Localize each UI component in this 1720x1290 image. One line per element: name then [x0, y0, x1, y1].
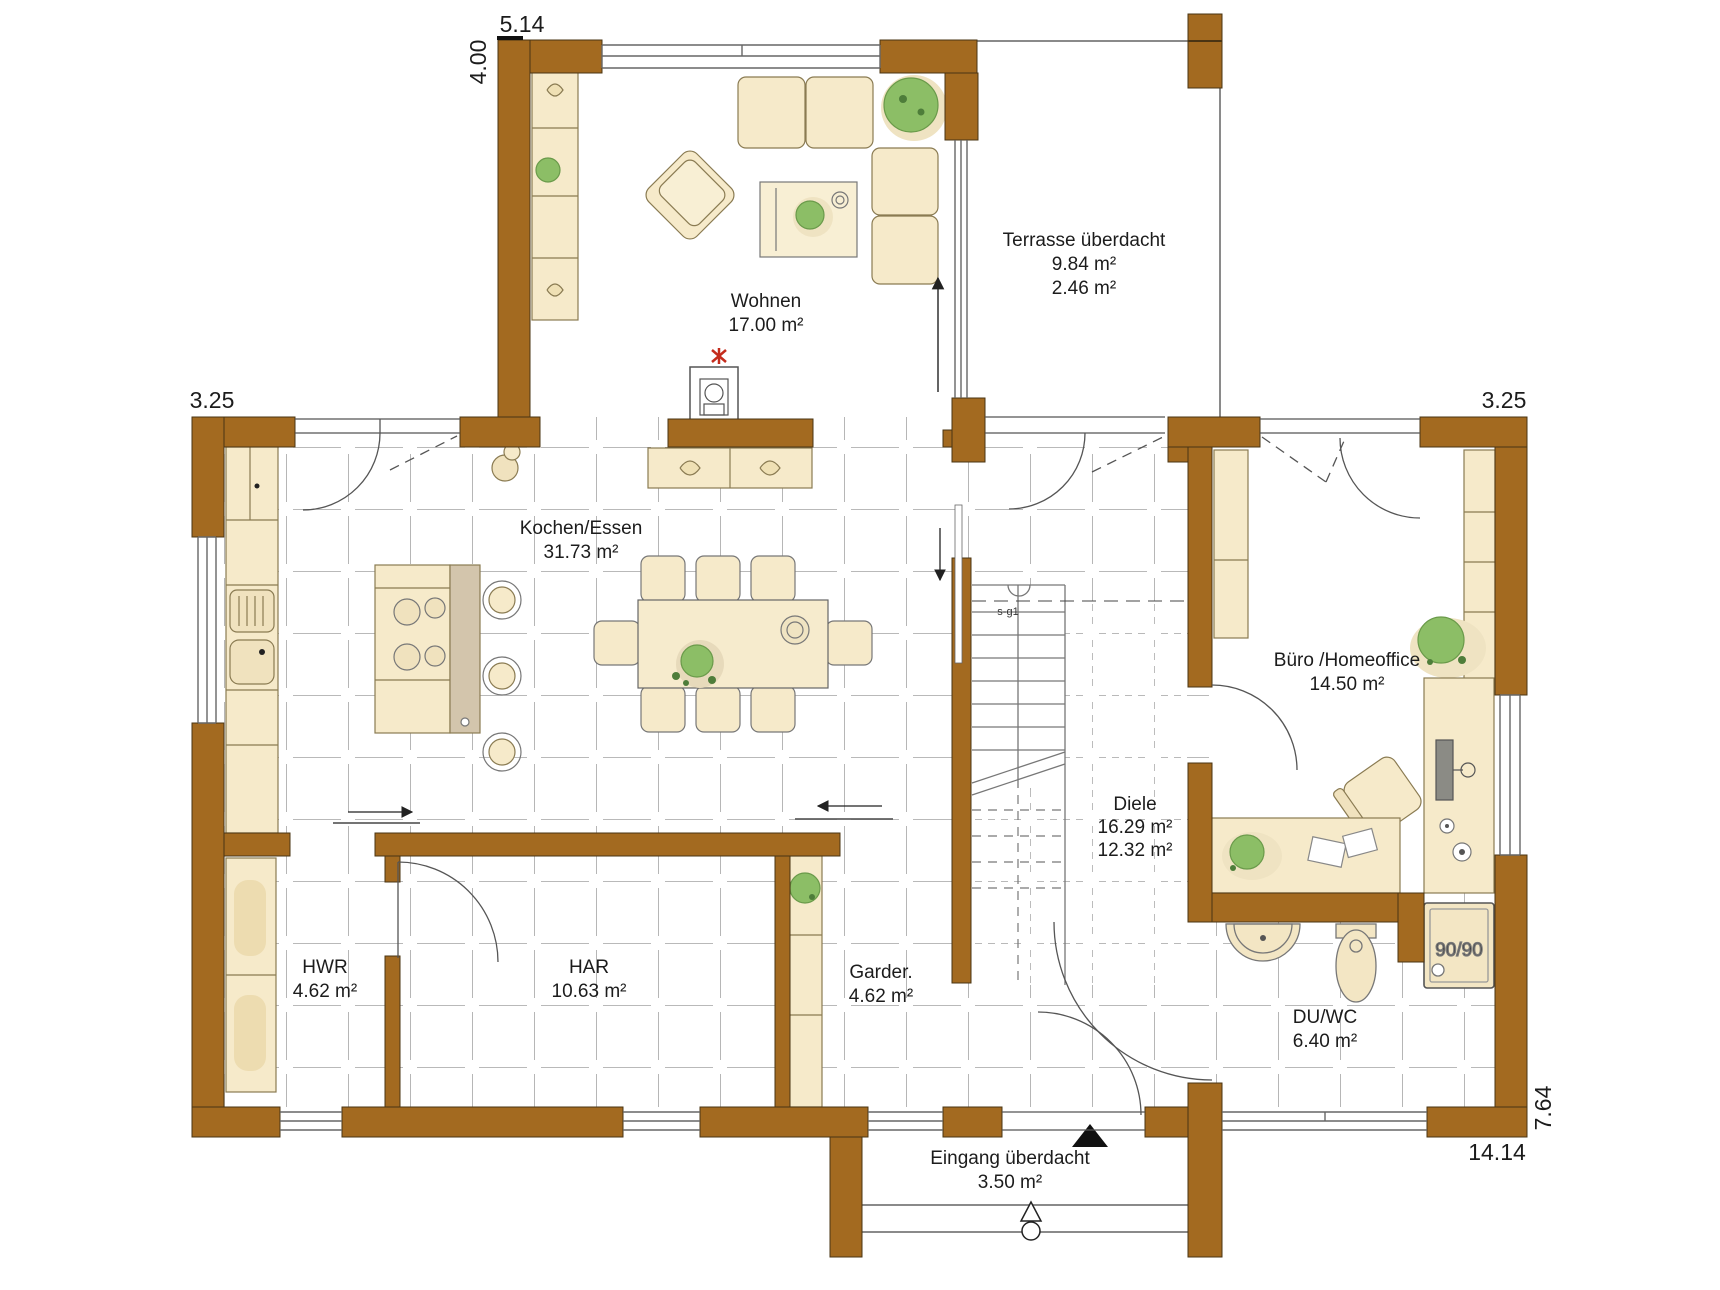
terrace-outline — [977, 41, 1220, 417]
window-livingroom-top — [602, 45, 880, 68]
label-garderobe-area: 4.62 m² — [849, 986, 913, 1007]
armchair — [642, 147, 738, 243]
label-duwc-area: 6.40 m² — [1293, 1031, 1357, 1052]
label-buero-area: 14.50 m² — [1310, 674, 1385, 695]
window-har-bottom — [623, 1112, 700, 1130]
window-duwc-bottom — [1222, 1112, 1427, 1130]
sliding-door-panel — [955, 505, 962, 663]
office-sideboard — [1203, 818, 1400, 893]
label-kochen-area: 31.73 m² — [544, 542, 619, 563]
label-garderobe: Garder. — [849, 962, 912, 983]
label-har-area: 10.63 m² — [552, 981, 627, 1002]
hwr-cabinet — [226, 858, 276, 1092]
office-wardrobe — [1214, 450, 1248, 638]
window-office-right — [1500, 695, 1520, 855]
dim-top: 5.14 — [500, 11, 545, 37]
label-eingang: Eingang überdacht — [930, 1148, 1090, 1169]
dining-table — [638, 600, 828, 688]
bowl — [781, 616, 809, 644]
desk — [1424, 678, 1494, 893]
porch-pillar-left — [830, 1137, 862, 1257]
entrance-arrow-icon — [1072, 1124, 1108, 1147]
floor-plan-page: s-g1 — [0, 0, 1720, 1290]
plant-large — [881, 75, 947, 141]
dim-top-left-side: 4.00 — [465, 40, 491, 85]
shelf-unit — [532, 68, 578, 320]
coffee-table — [760, 182, 857, 257]
label-duwc: DU/WC — [1293, 1007, 1357, 1028]
label-eingang-area: 3.50 m² — [978, 1172, 1042, 1193]
label-hwr: HWR — [302, 957, 347, 978]
label-buero: Büro /Homeoffice — [1274, 650, 1420, 671]
window-terrace-slider — [938, 140, 967, 398]
garderobe-closet — [788, 856, 822, 1107]
livingroom-furniture — [532, 68, 947, 320]
floor-plan: s-g1 — [0, 0, 1720, 1290]
toilet — [1336, 924, 1376, 1002]
kitchen-island — [375, 565, 480, 733]
label-har: HAR — [569, 957, 609, 978]
fireplace-marker-icon — [712, 348, 726, 364]
kitchen-counter — [226, 447, 278, 833]
label-terrasse-area: 9.84 m² — [1052, 254, 1116, 275]
label-kochen: Kochen/Essen — [520, 518, 643, 539]
label-diele-area: 16.29 m² — [1098, 817, 1173, 838]
label-wohnen: Wohnen — [731, 291, 801, 312]
sideboard — [648, 448, 812, 488]
window-entry-sidelight — [868, 1112, 943, 1130]
label-wohnen-area: 17.00 m² — [729, 315, 804, 336]
shower-size-label: 90/90 — [1435, 940, 1483, 961]
dim-bottom: 14.14 — [1468, 1139, 1526, 1165]
label-diele-area2: 12.32 m² — [1098, 840, 1173, 861]
label-terrasse: Terrasse überdacht — [1003, 230, 1166, 251]
label-hwr-area: 4.62 m² — [293, 981, 357, 1002]
stair-section-label: s-g1 — [997, 606, 1018, 618]
window-hwr-bottom — [280, 1112, 342, 1130]
porch-pillar-right — [1188, 1083, 1222, 1257]
dim-right: 3.25 — [1482, 387, 1527, 413]
window-kitchen-left — [198, 537, 216, 723]
terrace-pillar — [1188, 14, 1222, 88]
shower: 90/90 — [1424, 903, 1494, 988]
label-terrasse-area2: 2.46 m² — [1052, 278, 1116, 299]
monitor — [1436, 740, 1453, 800]
dim-bottom-right-side: 7.64 — [1530, 1085, 1556, 1130]
dim-left: 3.25 — [190, 387, 235, 413]
fireplace — [690, 348, 738, 424]
label-diele: Diele — [1113, 794, 1156, 815]
